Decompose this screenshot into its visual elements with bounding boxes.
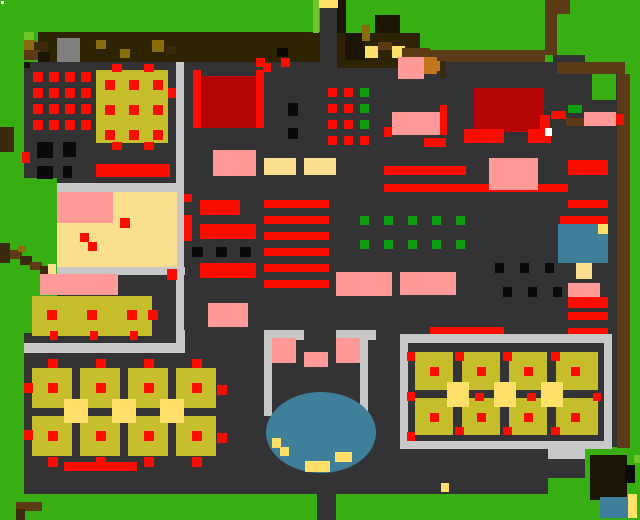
table-dot bbox=[127, 310, 137, 320]
table-dot bbox=[593, 393, 601, 401]
pool-duck bbox=[598, 224, 608, 234]
crate-shadow bbox=[440, 61, 446, 78]
pond-mat bbox=[272, 338, 296, 363]
wall-dot bbox=[184, 194, 192, 202]
stock-dot bbox=[49, 88, 59, 98]
table-dot bbox=[430, 367, 439, 376]
shelf-bar bbox=[384, 184, 568, 192]
black-post bbox=[288, 128, 298, 139]
table-dot bbox=[24, 383, 33, 393]
pond-wall bbox=[264, 340, 272, 416]
shelf-bar bbox=[568, 200, 608, 208]
table-dot bbox=[48, 383, 58, 393]
log-end bbox=[48, 264, 56, 274]
crate bbox=[37, 142, 53, 158]
table-dot bbox=[144, 64, 154, 72]
pond-duck bbox=[305, 461, 330, 472]
table-dot bbox=[153, 80, 163, 90]
black-dot bbox=[503, 287, 512, 297]
table-dot bbox=[571, 367, 580, 376]
plant-dot bbox=[408, 216, 417, 225]
grass-right-edge bbox=[630, 74, 640, 448]
band-gray-box bbox=[57, 38, 80, 62]
black-dot bbox=[520, 263, 529, 273]
pink-mat bbox=[584, 112, 616, 126]
dropped-item bbox=[441, 483, 449, 492]
water bbox=[600, 497, 628, 518]
room-wall-top bbox=[57, 183, 184, 192]
stock-dot bbox=[328, 136, 337, 145]
tree-top bbox=[375, 15, 400, 33]
shelf-bar bbox=[568, 160, 608, 175]
pink-mat bbox=[392, 112, 440, 135]
counter-bar bbox=[200, 224, 256, 239]
plant-dot bbox=[408, 240, 417, 249]
room-dot bbox=[120, 218, 130, 228]
bush bbox=[38, 52, 50, 62]
stock-dot bbox=[344, 104, 353, 113]
stock-dot bbox=[33, 88, 43, 98]
band-fleck bbox=[362, 25, 370, 41]
stump bbox=[0, 127, 14, 152]
grass-pocket bbox=[592, 74, 616, 100]
table-dot bbox=[192, 359, 202, 368]
red-trim bbox=[440, 105, 447, 135]
table-dot bbox=[477, 413, 486, 422]
stock-dot bbox=[49, 104, 59, 114]
black-dot bbox=[545, 263, 554, 273]
table-dot bbox=[551, 352, 560, 361]
stock-dot-green bbox=[360, 104, 369, 113]
table-dot bbox=[407, 352, 415, 361]
plant-dot bbox=[432, 216, 441, 225]
red-chip bbox=[551, 111, 566, 119]
red-dot bbox=[616, 114, 624, 125]
room-rug bbox=[57, 192, 113, 223]
table-dot bbox=[87, 310, 97, 320]
table-dot bbox=[153, 105, 163, 115]
stock-dot bbox=[360, 136, 369, 145]
table-dot bbox=[129, 105, 139, 115]
table-dot bbox=[524, 413, 533, 422]
chair bbox=[160, 399, 184, 423]
door-marker bbox=[167, 269, 177, 280]
pink-mat bbox=[398, 57, 424, 79]
table-dot bbox=[90, 331, 98, 340]
table-dot bbox=[144, 431, 154, 441]
table-dot bbox=[96, 383, 106, 393]
band-fleck bbox=[277, 48, 288, 57]
counter-bar bbox=[200, 200, 240, 215]
black-post bbox=[288, 103, 298, 116]
band-fleck bbox=[152, 40, 164, 52]
table-dot bbox=[407, 392, 415, 401]
brown-chip bbox=[566, 118, 584, 126]
chair bbox=[112, 399, 136, 423]
table-dot bbox=[105, 105, 115, 115]
north-path bbox=[320, 8, 337, 62]
stock-dot-green bbox=[360, 120, 369, 129]
table-dot bbox=[455, 352, 464, 361]
tree-canopy bbox=[590, 455, 627, 500]
table-dot bbox=[144, 359, 154, 368]
big-red-block bbox=[473, 88, 544, 132]
game-map[interactable] bbox=[0, 0, 640, 520]
plant-dot bbox=[456, 216, 465, 225]
table-dot bbox=[430, 413, 439, 422]
plant-dot bbox=[360, 216, 369, 225]
table-dot bbox=[475, 393, 484, 401]
wall-vertical bbox=[176, 62, 184, 343]
pink-mat bbox=[336, 272, 392, 296]
stock-dot bbox=[344, 88, 353, 97]
crate bbox=[37, 166, 53, 179]
shelf-stripe bbox=[264, 280, 329, 288]
log-moss bbox=[18, 246, 26, 252]
table-dot bbox=[153, 130, 163, 140]
shelf-bar bbox=[384, 166, 466, 175]
stock-dot bbox=[33, 120, 43, 130]
table-dot bbox=[24, 430, 33, 440]
leaf bbox=[634, 455, 640, 463]
chair bbox=[447, 382, 469, 407]
green-chip bbox=[568, 105, 582, 113]
stock-dot bbox=[49, 120, 59, 130]
pond-mat bbox=[304, 352, 328, 367]
chair bbox=[541, 382, 563, 407]
room-floor bbox=[57, 223, 113, 267]
table-dot bbox=[48, 457, 58, 467]
lantern bbox=[365, 46, 378, 58]
shelf-bar bbox=[568, 297, 608, 308]
table-dot bbox=[524, 367, 533, 376]
red-dot bbox=[384, 127, 392, 137]
table-dot bbox=[129, 80, 139, 90]
shelf-stripe bbox=[264, 248, 329, 256]
south-path bbox=[317, 494, 336, 520]
table-dot bbox=[48, 359, 58, 368]
mat bbox=[304, 158, 336, 175]
stock-dot bbox=[65, 72, 75, 82]
table-dot bbox=[144, 383, 154, 393]
table-dot bbox=[527, 393, 536, 401]
table-dot bbox=[105, 80, 115, 90]
stock-dot-green bbox=[360, 88, 369, 97]
room-floor bbox=[113, 192, 177, 267]
stock-dot bbox=[344, 120, 353, 129]
table-dot bbox=[105, 130, 115, 140]
black-dot bbox=[216, 247, 227, 257]
red-trim bbox=[424, 138, 446, 147]
chair bbox=[64, 399, 88, 423]
banner-post bbox=[193, 70, 201, 128]
gate-post bbox=[337, 0, 346, 33]
grass-light-strip bbox=[313, 0, 319, 33]
pink-mat bbox=[208, 303, 248, 327]
shelf-stripe bbox=[264, 264, 329, 272]
red-bar bbox=[96, 164, 170, 177]
table-dot bbox=[503, 427, 512, 435]
wall-horizontal bbox=[24, 343, 185, 353]
stock-dot bbox=[65, 104, 75, 114]
crate bbox=[63, 142, 76, 157]
stock-dot bbox=[344, 136, 353, 145]
stock-dot bbox=[65, 88, 75, 98]
black-dot bbox=[528, 287, 537, 297]
pink-mat bbox=[568, 283, 600, 297]
red-trim bbox=[464, 129, 504, 143]
pool-step bbox=[576, 263, 592, 279]
table-dot bbox=[571, 413, 580, 422]
table-dot bbox=[112, 142, 122, 150]
table-dot bbox=[217, 433, 227, 443]
table-dot bbox=[144, 457, 154, 467]
table-dot bbox=[129, 130, 139, 140]
wall-banner bbox=[184, 215, 192, 241]
black-dot bbox=[495, 263, 504, 273]
stock-dot bbox=[33, 72, 43, 82]
pink-mat bbox=[489, 158, 538, 190]
top-band-left bbox=[38, 32, 320, 62]
wall-stub bbox=[548, 448, 585, 459]
plant-dot bbox=[360, 240, 369, 249]
table-dot bbox=[455, 427, 464, 435]
red-banner bbox=[201, 76, 256, 128]
room-dot bbox=[88, 242, 97, 251]
table-dot bbox=[192, 457, 202, 467]
plant-dot bbox=[456, 240, 465, 249]
red-dot bbox=[22, 152, 30, 163]
pink-bench bbox=[40, 274, 118, 295]
chair bbox=[494, 382, 516, 407]
north-gate bbox=[318, 0, 338, 8]
fence-v bbox=[545, 0, 570, 14]
table-dot bbox=[503, 352, 512, 361]
room-dot bbox=[80, 233, 89, 242]
floor-stub bbox=[548, 459, 585, 478]
band-post bbox=[378, 42, 392, 50]
stock-dot bbox=[81, 120, 91, 130]
mat bbox=[264, 158, 296, 175]
table-dot bbox=[50, 331, 58, 340]
map-dot bbox=[1, 1, 4, 4]
band-fleck bbox=[120, 49, 130, 58]
plant-dot bbox=[384, 216, 393, 225]
pink-mat bbox=[400, 272, 456, 295]
table-dot bbox=[148, 310, 158, 320]
black-dot bbox=[240, 247, 251, 257]
table-dot bbox=[144, 142, 154, 150]
table-dot bbox=[551, 427, 560, 435]
crate bbox=[63, 166, 72, 178]
gate-marker bbox=[281, 58, 290, 67]
table-dot bbox=[96, 359, 106, 368]
fence-v bbox=[545, 14, 557, 55]
grass-stub bbox=[548, 478, 585, 494]
stock-dot bbox=[81, 104, 91, 114]
log bbox=[0, 243, 10, 263]
banner-post bbox=[256, 70, 264, 128]
band-fleck bbox=[166, 46, 176, 54]
right-strip bbox=[617, 74, 630, 448]
hall-wall-right bbox=[604, 334, 612, 449]
stock-dot bbox=[81, 72, 91, 82]
shelf-stripe bbox=[264, 200, 329, 208]
table-dot bbox=[96, 431, 106, 441]
hall-wall-bottom bbox=[400, 441, 612, 449]
red-dot bbox=[263, 63, 271, 72]
black-dot bbox=[553, 287, 562, 297]
plant-dot bbox=[432, 240, 441, 249]
shelf-stripe bbox=[264, 216, 329, 224]
hall-wall-top bbox=[400, 334, 612, 343]
table-dot bbox=[407, 432, 415, 441]
stock-dot bbox=[65, 120, 75, 130]
table-dot bbox=[192, 431, 202, 441]
stock-dot bbox=[328, 88, 337, 97]
table-dot bbox=[192, 383, 202, 393]
table-dot bbox=[477, 367, 486, 376]
stock-dot bbox=[328, 120, 337, 129]
black-dot bbox=[192, 247, 203, 257]
table-dot bbox=[217, 385, 227, 395]
pink-mat bbox=[213, 150, 256, 176]
shelf-bar bbox=[568, 312, 608, 320]
sign-post bbox=[16, 509, 25, 520]
shelf-stripe bbox=[264, 232, 329, 240]
stock-dot bbox=[33, 104, 43, 114]
stock-dot bbox=[81, 88, 91, 98]
pond-mat bbox=[336, 338, 360, 363]
plant-dot bbox=[384, 240, 393, 249]
crate-orange bbox=[424, 61, 440, 71]
stock-dot bbox=[49, 72, 59, 82]
red-bar bbox=[64, 462, 137, 471]
table-dot bbox=[112, 64, 122, 72]
white-dot bbox=[545, 128, 552, 136]
water-edge bbox=[628, 494, 637, 518]
band-fleck bbox=[96, 40, 106, 49]
table-dot bbox=[130, 331, 138, 340]
table-dot bbox=[48, 431, 58, 441]
wall-corner bbox=[177, 330, 185, 343]
bush bbox=[24, 62, 30, 68]
table-dot bbox=[47, 310, 57, 320]
pond-duck bbox=[335, 452, 352, 462]
stock-dot bbox=[328, 104, 337, 113]
fence-top-2 bbox=[557, 62, 625, 74]
tree-shadow bbox=[625, 465, 635, 483]
pond-duck bbox=[280, 447, 289, 456]
counter-bar bbox=[200, 263, 256, 278]
